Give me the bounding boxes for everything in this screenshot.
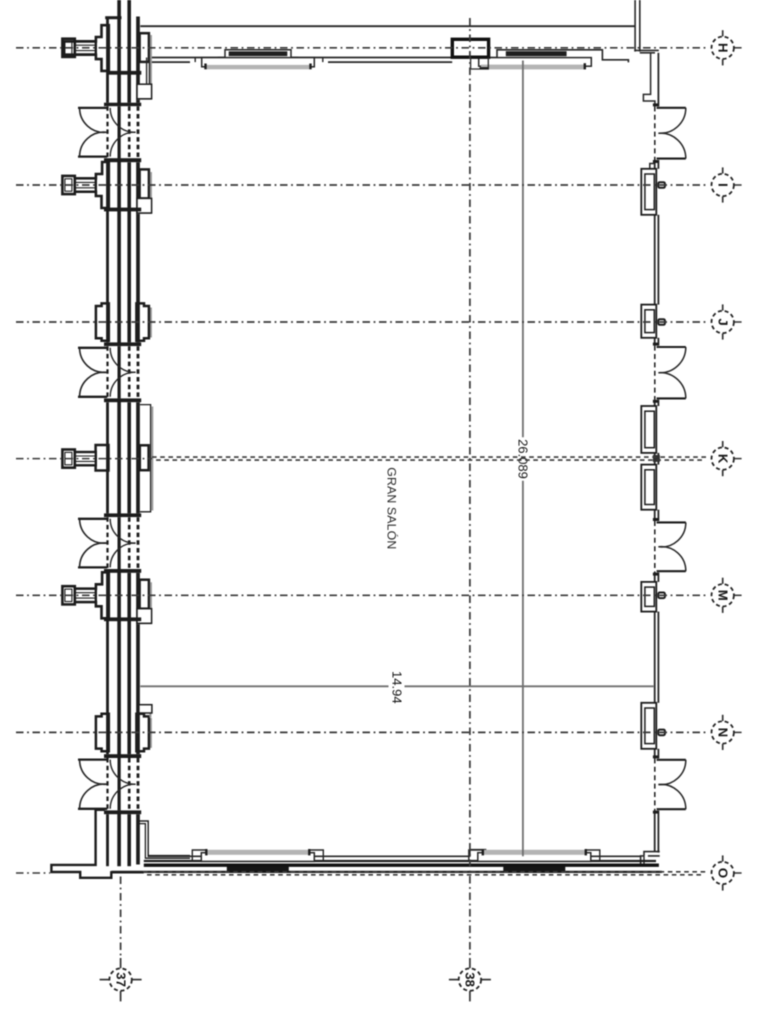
svg-text:GRAN SALÓN: GRAN SALÓN bbox=[384, 467, 399, 549]
svg-text:J: J bbox=[716, 318, 731, 325]
svg-text:H: H bbox=[716, 43, 731, 53]
svg-text:O: O bbox=[716, 868, 731, 878]
svg-text:26.089: 26.089 bbox=[515, 439, 530, 479]
svg-text:14.94: 14.94 bbox=[389, 671, 404, 704]
svg-text:I: I bbox=[716, 183, 731, 187]
svg-text:38: 38 bbox=[463, 972, 478, 987]
svg-text:N: N bbox=[716, 728, 731, 738]
svg-text:M: M bbox=[716, 590, 731, 601]
svg-text:37: 37 bbox=[113, 972, 128, 987]
svg-text:K: K bbox=[716, 454, 731, 464]
